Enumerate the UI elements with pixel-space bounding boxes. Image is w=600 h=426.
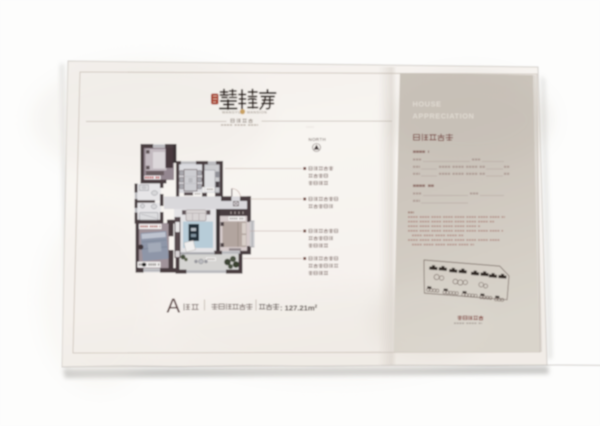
svg-text:HOUSE: HOUSE (413, 100, 442, 109)
svg-text:MANSION: MANSION (247, 111, 267, 115)
svg-text:APPRECIATION: APPRECIATION (413, 111, 475, 120)
svg-text:: 127.21m²: : 127.21m² (280, 303, 318, 312)
svg-text:NORTH: NORTH (309, 137, 327, 142)
svg-text:A: A (167, 295, 181, 318)
